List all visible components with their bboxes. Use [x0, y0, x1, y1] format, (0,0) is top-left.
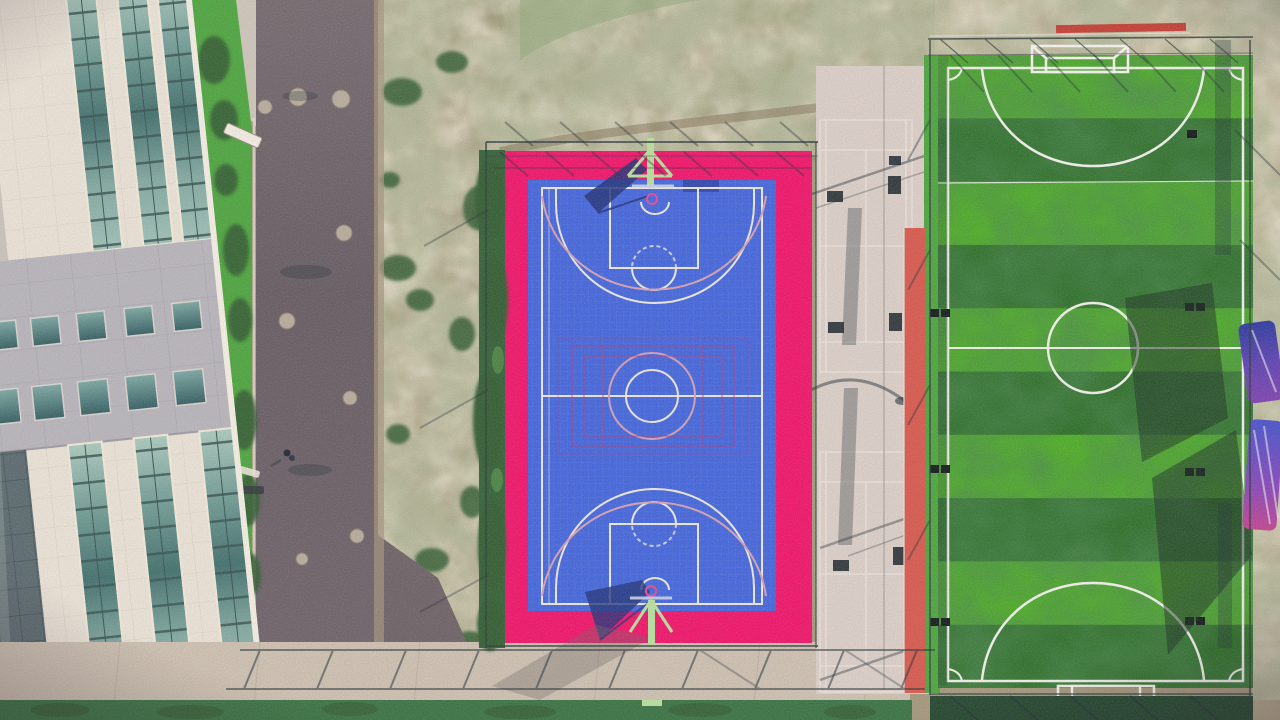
aerial-photo-stage [0, 0, 1280, 720]
vignette [0, 0, 1280, 720]
aerial-scene [0, 0, 1280, 720]
